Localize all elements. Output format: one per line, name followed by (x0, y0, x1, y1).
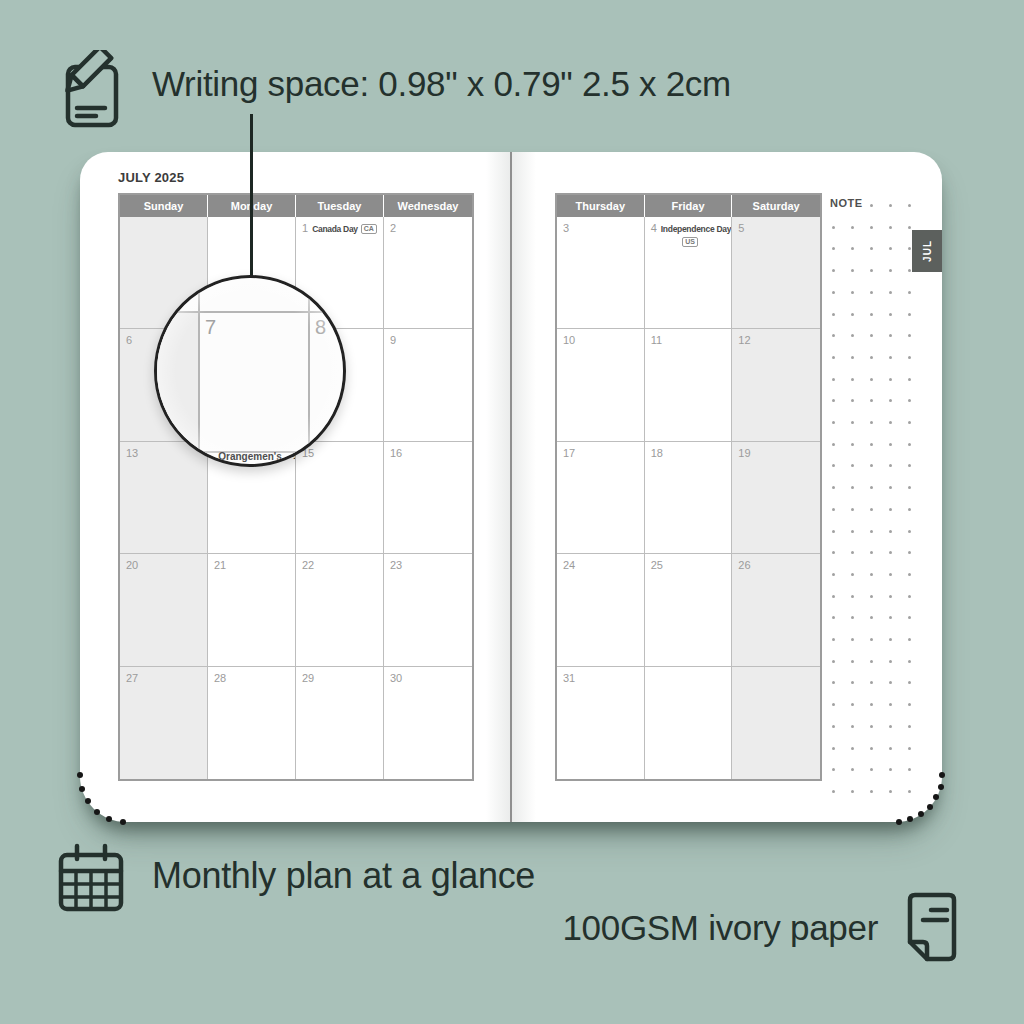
day-number: 13 (126, 447, 138, 459)
day-header-row: ThursdayFridaySaturday (557, 195, 820, 217)
note-dot (851, 508, 854, 511)
note-dot (870, 703, 873, 706)
note-dot (889, 790, 892, 793)
note-dot (832, 725, 835, 728)
planner-spread: JULY 2025 SundayMondayTuesdayWednesday1C… (80, 152, 942, 822)
note-dot (851, 226, 854, 229)
day-number: 31 (563, 672, 575, 684)
note-dot (908, 638, 911, 641)
calendar-grid-icon (52, 840, 130, 918)
day-cell-content: 28 (214, 671, 293, 684)
stitch-dot (79, 786, 85, 792)
note-dot (851, 291, 854, 294)
day-cell-26: 26 (732, 554, 820, 666)
day-cell-31: 31 (557, 667, 645, 779)
day-cell-17: 17 (557, 442, 645, 554)
note-dot (870, 269, 873, 272)
note-dot (870, 399, 873, 402)
day-number: 10 (563, 334, 575, 346)
note-dot (832, 443, 835, 446)
magnifier-lens: 7 8 Orangemen's (154, 275, 346, 467)
note-dot (870, 551, 873, 554)
note-dot (908, 747, 911, 750)
note-dot (851, 421, 854, 424)
note-dot (851, 443, 854, 446)
note-dot (908, 443, 911, 446)
note-dot (889, 486, 892, 489)
day-cell-content: 16 (390, 446, 470, 459)
note-dot (889, 660, 892, 663)
day-cell-18: 18 (645, 442, 733, 554)
note-dot (870, 443, 873, 446)
day-number: 26 (738, 559, 750, 571)
note-dot (908, 269, 911, 272)
stitch-dot (896, 819, 902, 825)
day-cell-4: 4Independence DayUS (645, 217, 733, 329)
note-dot (832, 399, 835, 402)
note-dot (851, 768, 854, 771)
day-number: 2 (390, 222, 396, 234)
day-cell-content: 26 (738, 558, 818, 571)
day-number: 23 (390, 559, 402, 571)
note-dot (889, 747, 892, 750)
day-cell-13: 13 (120, 442, 208, 554)
day-header-sunday: Sunday (120, 195, 208, 217)
day-number: 27 (126, 672, 138, 684)
note-dot (889, 399, 892, 402)
day-cell-3: 3 (557, 217, 645, 329)
day-header-row: SundayMondayTuesdayWednesday (120, 195, 472, 217)
day-number: 3 (563, 222, 569, 234)
note-dot (908, 421, 911, 424)
note-dot (889, 638, 892, 641)
note-dot (908, 595, 911, 598)
day-cell-content: 4Independence Day (651, 221, 730, 235)
day-cell-content: 5 (738, 221, 818, 234)
note-dot (889, 204, 892, 207)
note-dot (889, 443, 892, 446)
stitch-dot (106, 816, 112, 822)
day-cell-content: 25 (651, 558, 730, 571)
note-dot (908, 551, 911, 554)
note-pencil-icon (58, 50, 130, 132)
month-title: JULY 2025 (118, 170, 184, 185)
day-cell-content: 19 (738, 446, 818, 459)
note-dot (889, 269, 892, 272)
day-cell-22: 22 (296, 554, 384, 666)
calendar-body: 34Independence DayUS51011121718192425263… (557, 217, 820, 779)
note-dot (908, 226, 911, 229)
day-number: 21 (214, 559, 226, 571)
note-dot (870, 486, 873, 489)
writing-space-callout: Writing space: 0.98" x 0.79" 2.5 x 2cm (152, 64, 731, 104)
note-dot (832, 551, 835, 554)
stitch-dot (85, 798, 91, 804)
day-number: 19 (738, 447, 750, 459)
day-number: 4 (651, 222, 657, 234)
note-dot (889, 508, 892, 511)
note-dot (908, 768, 911, 771)
note-dot (889, 703, 892, 706)
note-dot (908, 725, 911, 728)
day-cell-21: 21 (208, 554, 296, 666)
day-cell-9: 9 (384, 329, 472, 441)
note-dot (851, 486, 854, 489)
note-dot (908, 616, 911, 619)
note-dot (870, 508, 873, 511)
day-cell-content: 29 (302, 671, 381, 684)
stitch-dot (939, 772, 945, 778)
stitch-dot (77, 772, 83, 778)
note-dot (889, 595, 892, 598)
note-dot (889, 378, 892, 381)
note-dot (908, 681, 911, 684)
day-cell-16: 16 (384, 442, 472, 554)
note-dot (889, 530, 892, 533)
note-dot (889, 226, 892, 229)
note-dot (870, 573, 873, 576)
note-dot (870, 291, 873, 294)
day-number: 5 (738, 222, 744, 234)
note-dot (908, 356, 911, 359)
note-dot (870, 378, 873, 381)
day-cell-content: 3 (563, 221, 642, 234)
day-cell-29: 29 (296, 667, 384, 779)
day-number: 25 (651, 559, 663, 571)
note-dot (851, 334, 854, 337)
day-number: 11 (651, 334, 662, 346)
note-column-label: NOTE (830, 197, 863, 209)
note-dot (870, 681, 873, 684)
note-dot (851, 573, 854, 576)
day-number: 30 (390, 672, 402, 684)
note-dot (832, 356, 835, 359)
note-dot (851, 356, 854, 359)
note-dot (870, 334, 873, 337)
day-cell-content: 15 (302, 446, 381, 459)
day-cell-content: 11 (651, 333, 730, 346)
day-header-saturday: Saturday (732, 195, 820, 217)
day-cell-25: 25 (645, 554, 733, 666)
note-dot (832, 486, 835, 489)
day-number: 22 (302, 559, 314, 571)
note-dot (851, 595, 854, 598)
note-dot (870, 421, 873, 424)
day-cell-content: 1Canada DayCA (302, 221, 381, 235)
note-dot (832, 747, 835, 750)
day-number: 16 (390, 447, 402, 459)
note-dot (870, 660, 873, 663)
day-cell-content: 21 (214, 558, 293, 571)
note-dot (870, 595, 873, 598)
magnifier-view: 7 8 Orangemen's (157, 278, 343, 464)
month-tab-label: JUL (922, 240, 933, 262)
day-cell-content: 24 (563, 558, 642, 571)
spine-shade-left (486, 152, 510, 822)
callout-connector-line (250, 114, 253, 280)
note-dot (851, 530, 854, 533)
paper-sheet-icon (898, 888, 964, 968)
holiday-label: Independence Day (661, 224, 731, 234)
day-number: 12 (738, 334, 750, 346)
day-cell-5: 5 (732, 217, 820, 329)
day-cell-empty (645, 667, 733, 779)
note-dot (851, 616, 854, 619)
day-header-tuesday: Tuesday (296, 195, 384, 217)
stitch-dot (918, 811, 924, 817)
stitch-dot (938, 784, 944, 790)
note-dot (832, 703, 835, 706)
day-number: 17 (563, 447, 575, 459)
day-cell-11: 11 (645, 329, 733, 441)
note-dot (889, 334, 892, 337)
day-cell-content: 9 (390, 333, 470, 346)
holiday-label: Canada Day (312, 224, 358, 234)
spine-shade-right (512, 152, 536, 822)
day-cell-content: 23 (390, 558, 470, 571)
note-dot (908, 486, 911, 489)
note-dot (851, 551, 854, 554)
note-dot (889, 464, 892, 467)
day-cell-27: 27 (120, 667, 208, 779)
note-dot (908, 530, 911, 533)
note-dot (832, 573, 835, 576)
day-number: 18 (651, 447, 663, 459)
stitch-dot (120, 819, 126, 825)
note-dot (889, 725, 892, 728)
note-dot (870, 790, 873, 793)
note-dot (908, 573, 911, 576)
note-dot (889, 247, 892, 250)
note-dot (832, 768, 835, 771)
stitch-dot (94, 809, 100, 815)
note-dot (870, 725, 873, 728)
day-cell-2: 2 (384, 217, 472, 329)
note-dot (832, 530, 835, 533)
note-dot (851, 269, 854, 272)
note-dot (870, 204, 873, 207)
day-number: 29 (302, 672, 314, 684)
day-header-thursday: Thursday (557, 195, 645, 217)
note-dot (870, 530, 873, 533)
note-dot (889, 291, 892, 294)
note-dot (851, 660, 854, 663)
day-number: 20 (126, 559, 138, 571)
note-dot (851, 638, 854, 641)
note-dot (870, 768, 873, 771)
note-dot (870, 226, 873, 229)
note-dot (832, 421, 835, 424)
note-dot (908, 508, 911, 511)
note-dot (908, 660, 911, 663)
day-cell-empty (732, 667, 820, 779)
note-dot (851, 703, 854, 706)
note-dot (851, 790, 854, 793)
note-dot (832, 508, 835, 511)
day-cell-15: 15 (296, 442, 384, 554)
day-cell-10: 10 (557, 329, 645, 441)
note-dot (889, 768, 892, 771)
note-dot (870, 313, 873, 316)
note-dot (851, 378, 854, 381)
day-header-wednesday: Wednesday (384, 195, 472, 217)
note-dot (870, 356, 873, 359)
stitch-dot (907, 816, 913, 822)
note-dot (908, 334, 911, 337)
note-dot (870, 747, 873, 750)
note-dot (832, 226, 835, 229)
note-dot (870, 616, 873, 619)
note-dot (870, 638, 873, 641)
note-dot (851, 399, 854, 402)
note-dot (908, 464, 911, 467)
day-cell-content: 2 (390, 221, 470, 234)
note-dot (870, 247, 873, 250)
note-dot (832, 313, 835, 316)
lens-edge-fade (157, 278, 343, 464)
note-dot (832, 378, 835, 381)
note-dot (908, 204, 911, 207)
note-dot (908, 247, 911, 250)
note-dot (889, 313, 892, 316)
day-cell-19: 19 (732, 442, 820, 554)
day-cell-content: 20 (126, 558, 205, 571)
note-dot (908, 790, 911, 793)
day-number: 24 (563, 559, 575, 571)
note-dot (851, 247, 854, 250)
day-cell-28: 28 (208, 667, 296, 779)
note-dot (832, 291, 835, 294)
note-dot (908, 399, 911, 402)
stitch-dot (927, 804, 933, 810)
book-spine (510, 152, 512, 822)
note-dot (832, 464, 835, 467)
monthly-plan-callout: Monthly plan at a glance (152, 855, 535, 897)
note-dot (832, 595, 835, 598)
note-dot (908, 313, 911, 316)
stitch-dot (933, 794, 939, 800)
note-dot (908, 378, 911, 381)
month-tab-jul: JUL (912, 230, 942, 272)
day-number: 28 (214, 672, 226, 684)
note-dot (889, 681, 892, 684)
note-dot (832, 681, 835, 684)
day-cell-20: 20 (120, 554, 208, 666)
day-cell-content: 22 (302, 558, 381, 571)
day-cell-content: 12 (738, 333, 818, 346)
day-number: 6 (126, 334, 132, 346)
day-header-friday: Friday (645, 195, 733, 217)
day-number: 9 (390, 334, 396, 346)
day-cell-12: 12 (732, 329, 820, 441)
note-dot (832, 638, 835, 641)
paper-spec-callout: 100GSM ivory paper (562, 908, 878, 948)
day-cell-content: 27 (126, 671, 205, 684)
day-cell-content: 18 (651, 446, 730, 459)
calendar-grid-left: SundayMondayTuesdayWednesday1Canada DayC… (118, 193, 474, 781)
day-cell-content: 17 (563, 446, 642, 459)
note-dot (832, 660, 835, 663)
note-dot (908, 703, 911, 706)
day-cell-24: 24 (557, 554, 645, 666)
note-dot (851, 681, 854, 684)
note-dot (832, 247, 835, 250)
calendar-grid-right: ThursdayFridaySaturday34Independence Day… (555, 193, 822, 781)
note-dot (908, 291, 911, 294)
note-dot (832, 269, 835, 272)
note-dot (889, 421, 892, 424)
note-dot (889, 573, 892, 576)
note-dot (832, 616, 835, 619)
day-cell-23: 23 (384, 554, 472, 666)
note-dot (889, 616, 892, 619)
note-dot (851, 747, 854, 750)
note-dot (889, 356, 892, 359)
note-dot (889, 551, 892, 554)
day-cell-content: 10 (563, 333, 642, 346)
note-dot (851, 464, 854, 467)
note-dot (832, 790, 835, 793)
country-badge: US (682, 237, 698, 247)
day-number: 1 (302, 222, 308, 234)
note-dot (832, 334, 835, 337)
day-cell-content: 30 (390, 671, 470, 684)
note-dot (851, 725, 854, 728)
country-badge: CA (361, 224, 377, 234)
day-cell-content: 31 (563, 671, 642, 684)
note-dot (870, 464, 873, 467)
note-dot (851, 313, 854, 316)
day-cell-30: 30 (384, 667, 472, 779)
